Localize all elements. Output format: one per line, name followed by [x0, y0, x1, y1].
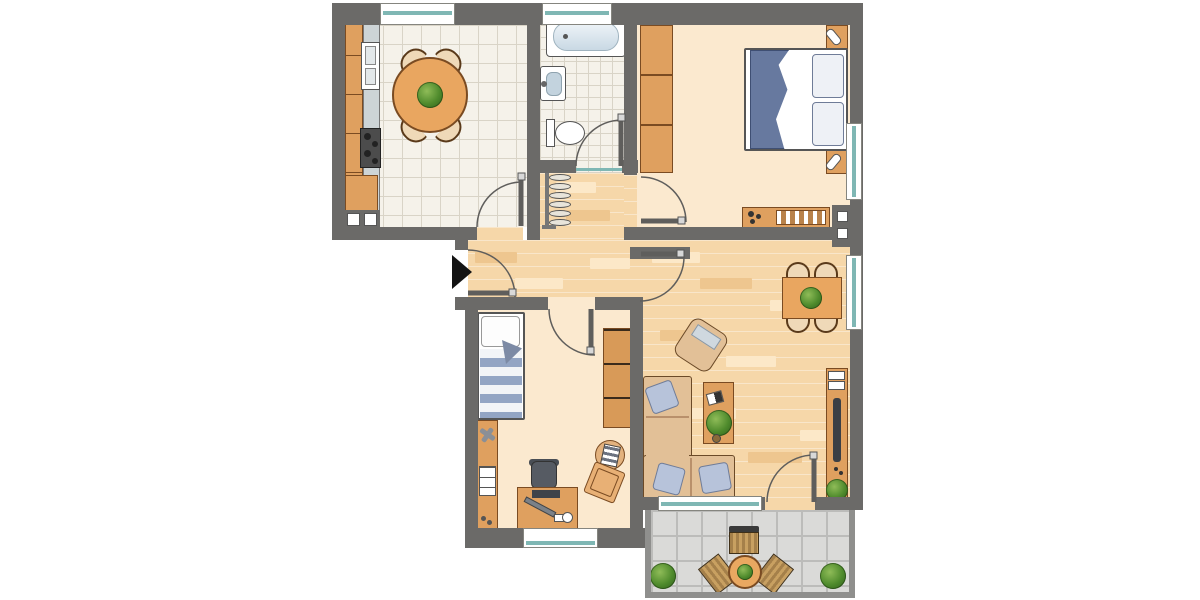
entrance-door-arc [468, 250, 515, 297]
door-handle-post [587, 347, 594, 354]
bedroom-door-arc [641, 177, 686, 222]
door-handle-post [678, 217, 685, 224]
balcony-door-arc [767, 455, 814, 502]
door-swing-overlay [0, 0, 1200, 600]
kitchen-door-arc [477, 182, 522, 227]
bathroom-door-arc [576, 120, 622, 166]
door-handle-post [518, 173, 525, 180]
door-handle-post [509, 289, 516, 296]
door-handle-post [810, 452, 817, 459]
entrance-arrow-icon [452, 255, 472, 289]
living-room-door-arc [640, 257, 684, 301]
door-handle-post [677, 250, 684, 257]
door-handle-post [618, 114, 625, 121]
floor-plan-canvas [0, 0, 1200, 600]
